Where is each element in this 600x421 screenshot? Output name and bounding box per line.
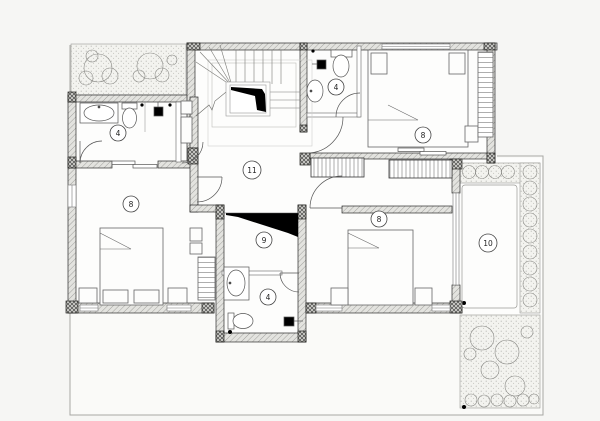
pillow: [103, 290, 128, 303]
wardrobe: [311, 158, 364, 177]
room-label-stair-void: 9: [256, 232, 272, 248]
wall-void-right: [298, 205, 306, 342]
wall-bath-tr-left: [300, 43, 307, 132]
room-label-bedroom-top-right: 8: [415, 127, 431, 143]
wall-bedroom-br-top: [342, 206, 452, 213]
wall-bath-tl-inner: [176, 102, 181, 162]
floor-plan-canvas: 4 4 8 8 11 9 8 4: [0, 0, 600, 421]
window-top-right-bedroom: [382, 44, 450, 49]
room-label-bedroom-left: 8: [123, 196, 139, 212]
drain-point: [311, 49, 314, 52]
window-left-bedroom: [68, 185, 76, 207]
room-number: 8: [377, 215, 382, 224]
room-label-terrace: 10: [479, 234, 497, 252]
drain-point: [462, 301, 466, 305]
wall-bath-bottom-bottom: [216, 333, 306, 342]
wall-bath-tl-top: [68, 95, 190, 102]
toilet-top-left-bath: [122, 103, 137, 128]
bench: [465, 126, 478, 142]
pillow: [134, 290, 159, 303]
drain-point: [228, 330, 232, 334]
toilet-bottom-bath: [228, 313, 253, 329]
bed-bottom-right-bedroom: [348, 230, 413, 305]
pillow: [449, 53, 465, 74]
pillow: [371, 53, 387, 74]
shelf: [190, 243, 202, 254]
room-number: 8: [421, 131, 426, 140]
sink-top-right-bath: [307, 80, 323, 102]
linen-shelf: [198, 257, 215, 300]
sink-bottom-bath: [224, 267, 249, 300]
sink-top-left-bath: [80, 103, 118, 123]
room-label-bathroom-top-left: 4: [110, 125, 126, 141]
drain-point: [462, 405, 466, 409]
window-terrace-door: [453, 193, 459, 285]
window-bottom-left-a: [80, 305, 98, 311]
wardrobe: [389, 160, 452, 178]
wall-bath-tr-right: [357, 46, 361, 117]
room-label-hall: 11: [243, 161, 261, 179]
wall-bath-tr-bottom: [307, 113, 360, 117]
wall-exterior-top: [187, 43, 497, 50]
room-number: 4: [116, 129, 121, 138]
room-number: 9: [262, 236, 267, 245]
window-bottom-left-b: [167, 305, 191, 311]
nightstand: [79, 288, 97, 303]
duct: [181, 101, 192, 114]
bed-left-bedroom: [100, 228, 163, 305]
room-label-bathroom-top-right: 4: [328, 79, 344, 95]
window-bottom-right-a: [316, 305, 342, 311]
shelf: [190, 228, 202, 241]
shelf-unit: [478, 52, 493, 137]
nightstand: [168, 288, 187, 303]
room-number: 8: [129, 200, 134, 209]
window-bottom-right-b: [432, 305, 450, 311]
room-label-bedroom-bottom-right: 8: [371, 211, 387, 227]
room-number: 10: [483, 239, 493, 248]
room-number: 4: [334, 83, 339, 92]
room-label-bathroom-bottom: 4: [260, 289, 276, 305]
duct: [181, 117, 192, 143]
room-number: 4: [266, 293, 271, 302]
room-number: 11: [247, 166, 257, 175]
nightstand: [415, 288, 432, 305]
nightstand: [331, 288, 348, 305]
drain-point: [168, 103, 171, 106]
drain-point: [140, 103, 143, 106]
